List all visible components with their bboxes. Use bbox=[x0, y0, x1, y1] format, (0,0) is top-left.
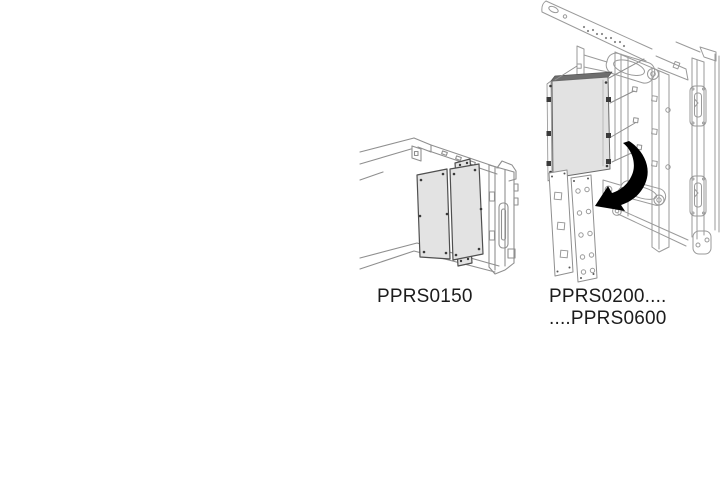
right-upright-rail bbox=[676, 42, 719, 254]
pprs0150-illustration bbox=[360, 138, 518, 274]
frame-channels bbox=[615, 52, 670, 252]
part-number-line2: ....PPRS0600 bbox=[549, 308, 667, 330]
cover-right-leaf bbox=[450, 164, 483, 260]
part-number-label-pprs0150: PPRS0150 bbox=[377, 286, 473, 308]
mounting-hole bbox=[633, 118, 638, 123]
blind-cover-panels bbox=[417, 159, 483, 266]
upright-slot-bar bbox=[499, 203, 508, 248]
mounting-hole bbox=[577, 64, 581, 68]
rail-holes bbox=[583, 26, 625, 47]
illustration-svg bbox=[0, 0, 720, 481]
perforated-strip-round-holes bbox=[571, 175, 597, 282]
perforated-strip-square-holes bbox=[549, 170, 573, 276]
mounting-upright bbox=[489, 161, 518, 274]
perforated-strips bbox=[549, 170, 597, 282]
part-number-label-pprs0200-0600: PPRS0200.... ....PPRS0600 bbox=[549, 286, 667, 330]
blind-panel bbox=[547, 72, 613, 181]
top-mounting-rail bbox=[542, 1, 652, 61]
part-number-line1: PPRS0200.... bbox=[549, 286, 667, 308]
bracket-hole bbox=[415, 152, 419, 156]
panel-face bbox=[552, 77, 610, 178]
frame-bottom-bracket bbox=[603, 179, 688, 246]
manual-page: PPRS0150 PPRS0200.... ....PPRS0600 bbox=[0, 0, 720, 481]
pprs0200-0600-illustration bbox=[542, 1, 719, 282]
mounting-hole bbox=[632, 87, 637, 92]
cover-left-leaf bbox=[417, 169, 450, 259]
